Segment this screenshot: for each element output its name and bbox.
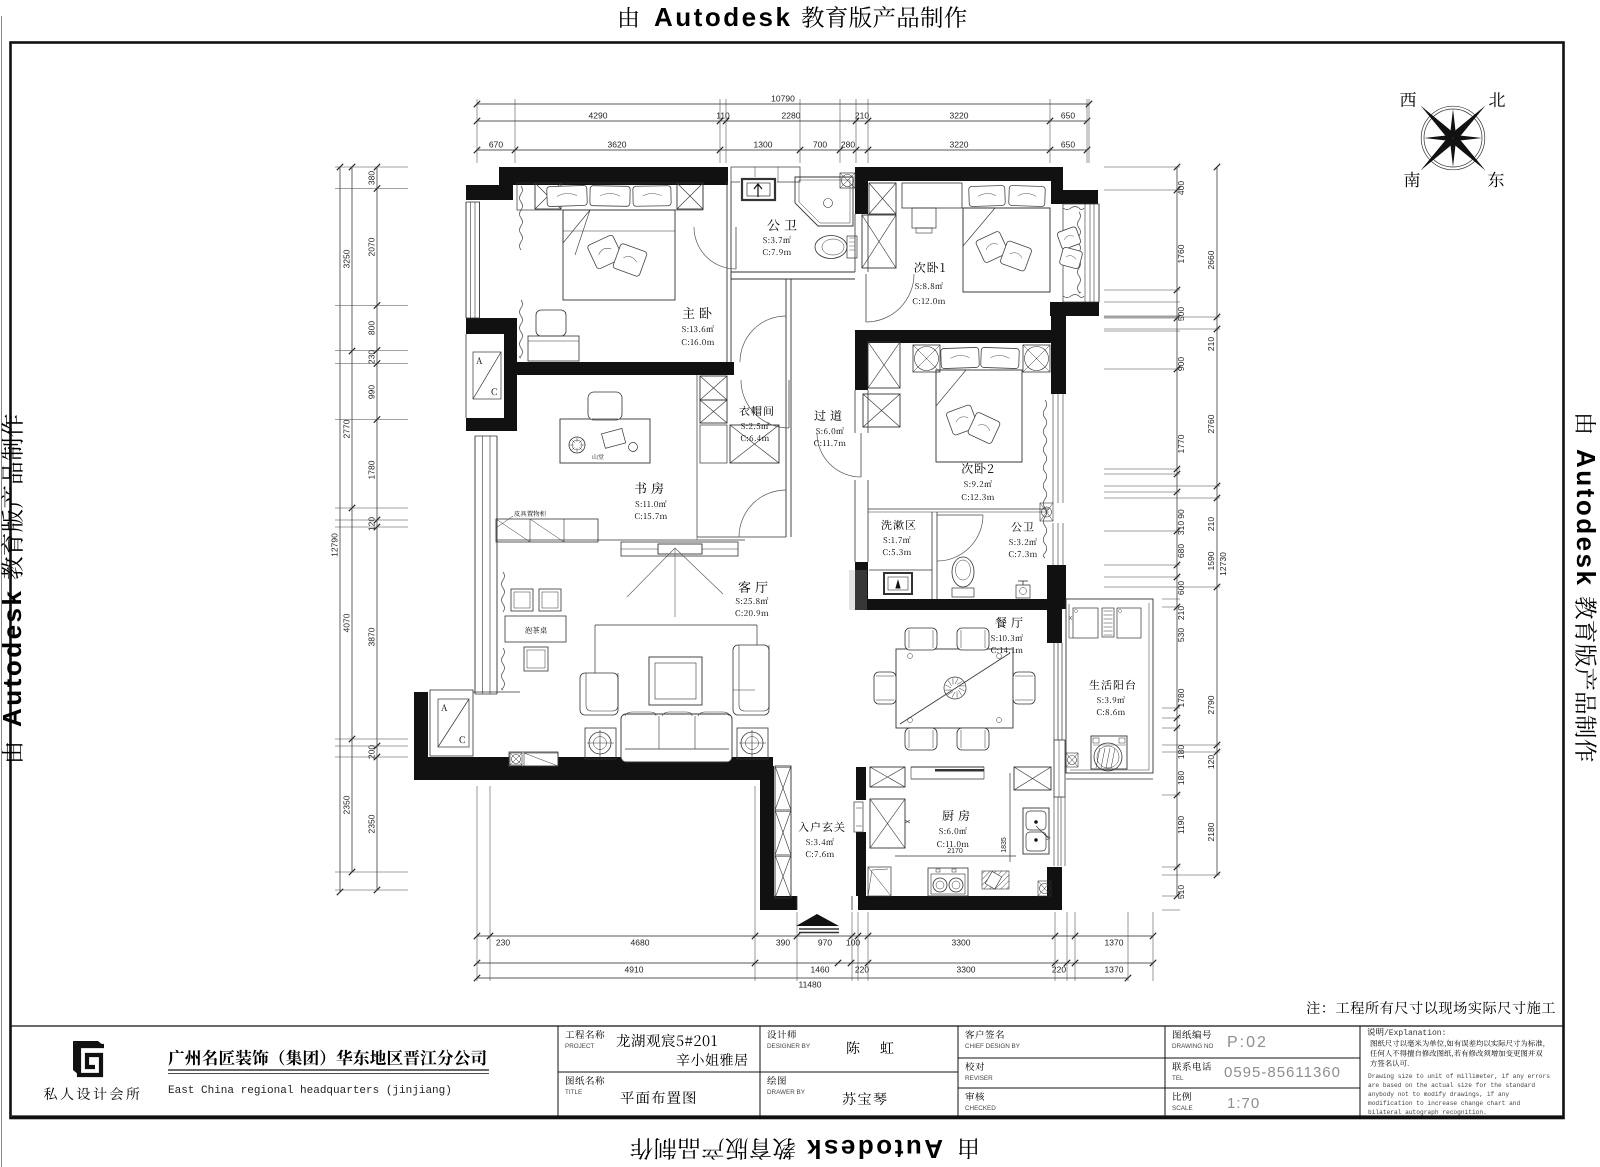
svg-text:650: 650 [1061,140,1075,150]
svg-text:1370: 1370 [1105,965,1124,975]
svg-text:210: 210 [1206,337,1216,351]
svg-text:PROJECT: PROJECT [565,1043,595,1050]
svg-text:Drawing size to unit of millim: Drawing size to unit of millimeter, if a… [1368,1073,1550,1080]
svg-text:210: 210 [855,111,869,121]
svg-text:650: 650 [1061,111,1075,121]
svg-text:2180: 2180 [1206,822,1216,841]
svg-text:bilateral autograph recognitio: bilateral autograph recognition. [1368,1109,1487,1116]
svg-text:380: 380 [367,171,377,185]
svg-text:390: 390 [776,938,790,948]
svg-text:90: 90 [1176,509,1186,519]
svg-text:TITLE: TITLE [565,1089,582,1096]
svg-text:3250: 3250 [342,249,352,268]
svg-text:120: 120 [367,517,377,531]
svg-text:2760: 2760 [1206,414,1216,433]
svg-text:Autodesk: Autodesk [0,589,27,727]
svg-text:3300: 3300 [952,938,971,948]
svg-text:/Explanation:: /Explanation: [1384,1029,1446,1038]
svg-text:220: 220 [1052,965,1066,975]
svg-text:P:02: P:02 [1227,1034,1268,1051]
svg-text:DRAWER BY: DRAWER BY [767,1089,806,1096]
svg-text:3300: 3300 [957,965,976,975]
svg-text:1835: 1835 [1001,837,1008,853]
svg-text:CHECKED: CHECKED [965,1105,996,1112]
svg-text:12730: 12730 [1218,552,1228,576]
svg-text:800: 800 [367,321,377,335]
svg-text:are based on the actual size f: are based on the actual size for the sta… [1368,1082,1535,1089]
svg-text:3870: 3870 [367,627,377,646]
svg-text:1590: 1590 [1206,551,1216,570]
svg-text:180: 180 [1176,771,1186,785]
svg-text:11480: 11480 [798,980,821,990]
svg-text:530: 530 [1176,628,1186,642]
svg-text:Autodesk: Autodesk [654,2,792,32]
svg-text:600: 600 [1176,581,1186,595]
svg-text:0595-85611360: 0595-85611360 [1224,1064,1341,1081]
svg-text:1300: 1300 [754,140,773,150]
svg-text:4290: 4290 [589,111,608,121]
svg-text:230: 230 [496,938,510,948]
svg-text:REVISER: REVISER [965,1075,993,1082]
svg-text:2350: 2350 [342,795,352,814]
svg-text:220: 220 [855,965,869,975]
svg-text:1190: 1190 [1176,816,1186,835]
svg-text:modification to increase chang: modification to increase change chart an… [1368,1100,1521,1107]
svg-text:1780: 1780 [367,460,377,479]
svg-text:670: 670 [489,140,503,150]
svg-text:East China regional headquarte: East China regional headquarters (jinjia… [168,1085,452,1097]
svg-text:2280: 2280 [782,111,801,121]
svg-text:anybody not to modify drawings: anybody not to modify drawings, if any [1368,1091,1509,1098]
svg-text:TEL: TEL [1172,1075,1184,1082]
svg-text:2770: 2770 [342,419,352,438]
svg-text:970: 970 [818,938,832,948]
svg-text:1780: 1780 [1176,688,1186,707]
svg-text:2170: 2170 [947,848,963,855]
svg-text:110: 110 [716,111,730,121]
svg-text:3220: 3220 [950,111,969,121]
svg-text:990: 990 [367,385,377,399]
svg-text:SCALE: SCALE [1172,1105,1193,1112]
svg-text:1770: 1770 [1176,434,1186,453]
svg-text:2070: 2070 [367,237,377,256]
svg-text:1:70: 1:70 [1227,1095,1260,1112]
svg-text:DESIGNER BY: DESIGNER BY [767,1043,811,1050]
svg-text:1460: 1460 [811,965,830,975]
svg-text:510: 510 [1176,885,1186,899]
svg-text:CHIEF DESIGN BY: CHIEF DESIGN BY [965,1043,1021,1050]
svg-text:2790: 2790 [1206,695,1216,714]
svg-text:210: 210 [1206,517,1216,531]
svg-text:1760: 1760 [1176,244,1186,263]
svg-text:Autodesk: Autodesk [1571,449,1600,587]
svg-text:2660: 2660 [1206,250,1216,269]
svg-text:4910: 4910 [625,965,644,975]
svg-text:120: 120 [1206,755,1216,769]
svg-text:680: 680 [1176,544,1186,558]
svg-text:3220: 3220 [950,140,969,150]
svg-text:4680: 4680 [631,938,650,948]
svg-text:DRAWING NO: DRAWING NO [1172,1043,1213,1050]
svg-text:Autodesk: Autodesk [805,1134,943,1164]
svg-text:12790: 12790 [330,533,340,557]
svg-text:230: 230 [367,350,377,364]
svg-text:500: 500 [1176,307,1186,321]
svg-text:400: 400 [1176,181,1186,195]
svg-text:3620: 3620 [608,140,627,150]
svg-text:280: 280 [841,140,855,150]
svg-text:310: 310 [1176,521,1186,535]
svg-text:1370: 1370 [1105,938,1124,948]
svg-text:210: 210 [1176,606,1186,620]
svg-text:10790: 10790 [771,94,795,104]
svg-text:2350: 2350 [367,814,377,833]
svg-text:4070: 4070 [342,613,352,632]
svg-text:700: 700 [813,140,827,150]
